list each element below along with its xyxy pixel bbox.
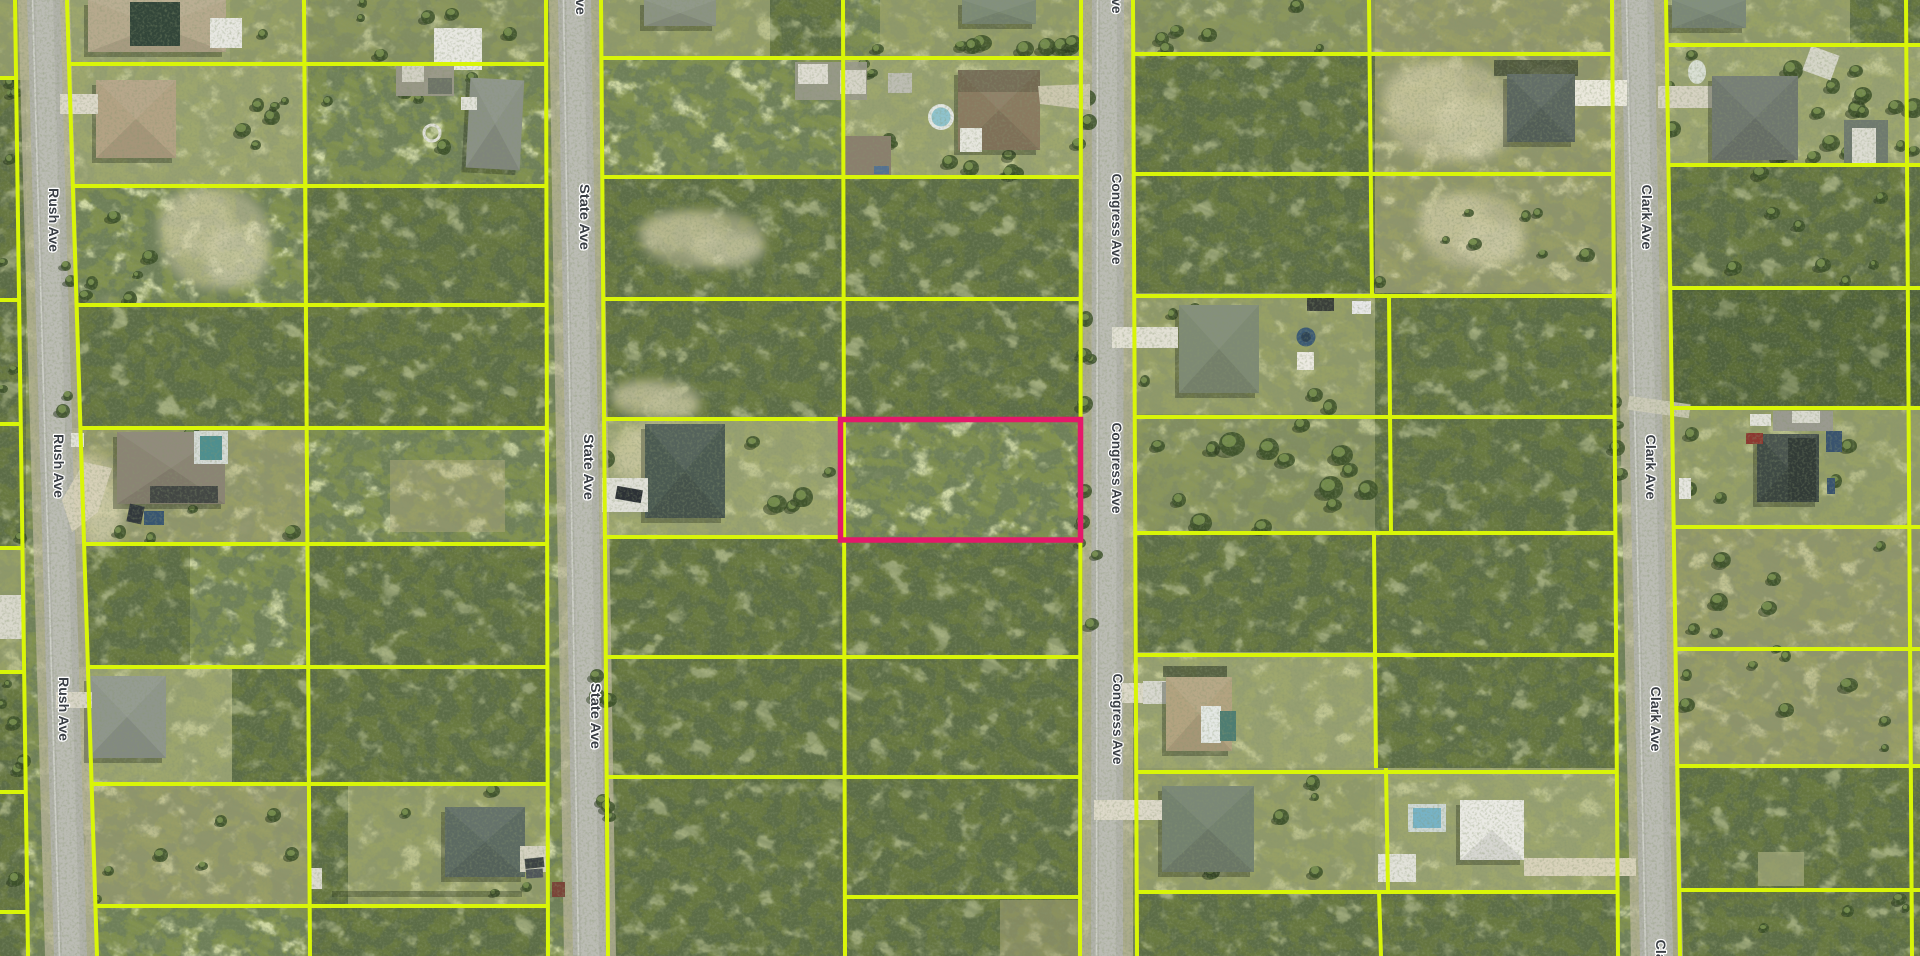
svg-text:State Ave: State Ave (588, 683, 604, 749)
svg-text:Congress Ave: Congress Ave (1110, 674, 1126, 765)
svg-text:Clark Ave: Clark Ave (1653, 940, 1669, 956)
svg-text:State Ave: State Ave (573, 0, 589, 15)
svg-text:Rush Ave: Rush Ave (46, 188, 62, 252)
svg-text:Clark Ave: Clark Ave (1648, 687, 1664, 752)
svg-text:Congress Ave: Congress Ave (1109, 0, 1125, 14)
svg-text:Rush Ave: Rush Ave (51, 434, 67, 498)
svg-text:Rush Ave: Rush Ave (56, 677, 72, 741)
svg-text:Congress Ave: Congress Ave (1109, 423, 1125, 514)
svg-text:Clark Ave: Clark Ave (1639, 185, 1655, 250)
svg-text:State Ave: State Ave (577, 184, 593, 250)
svg-text:Clark Ave: Clark Ave (1643, 435, 1659, 500)
svg-text:State Ave: State Ave (581, 434, 597, 500)
svg-text:Congress Ave: Congress Ave (1109, 174, 1125, 265)
